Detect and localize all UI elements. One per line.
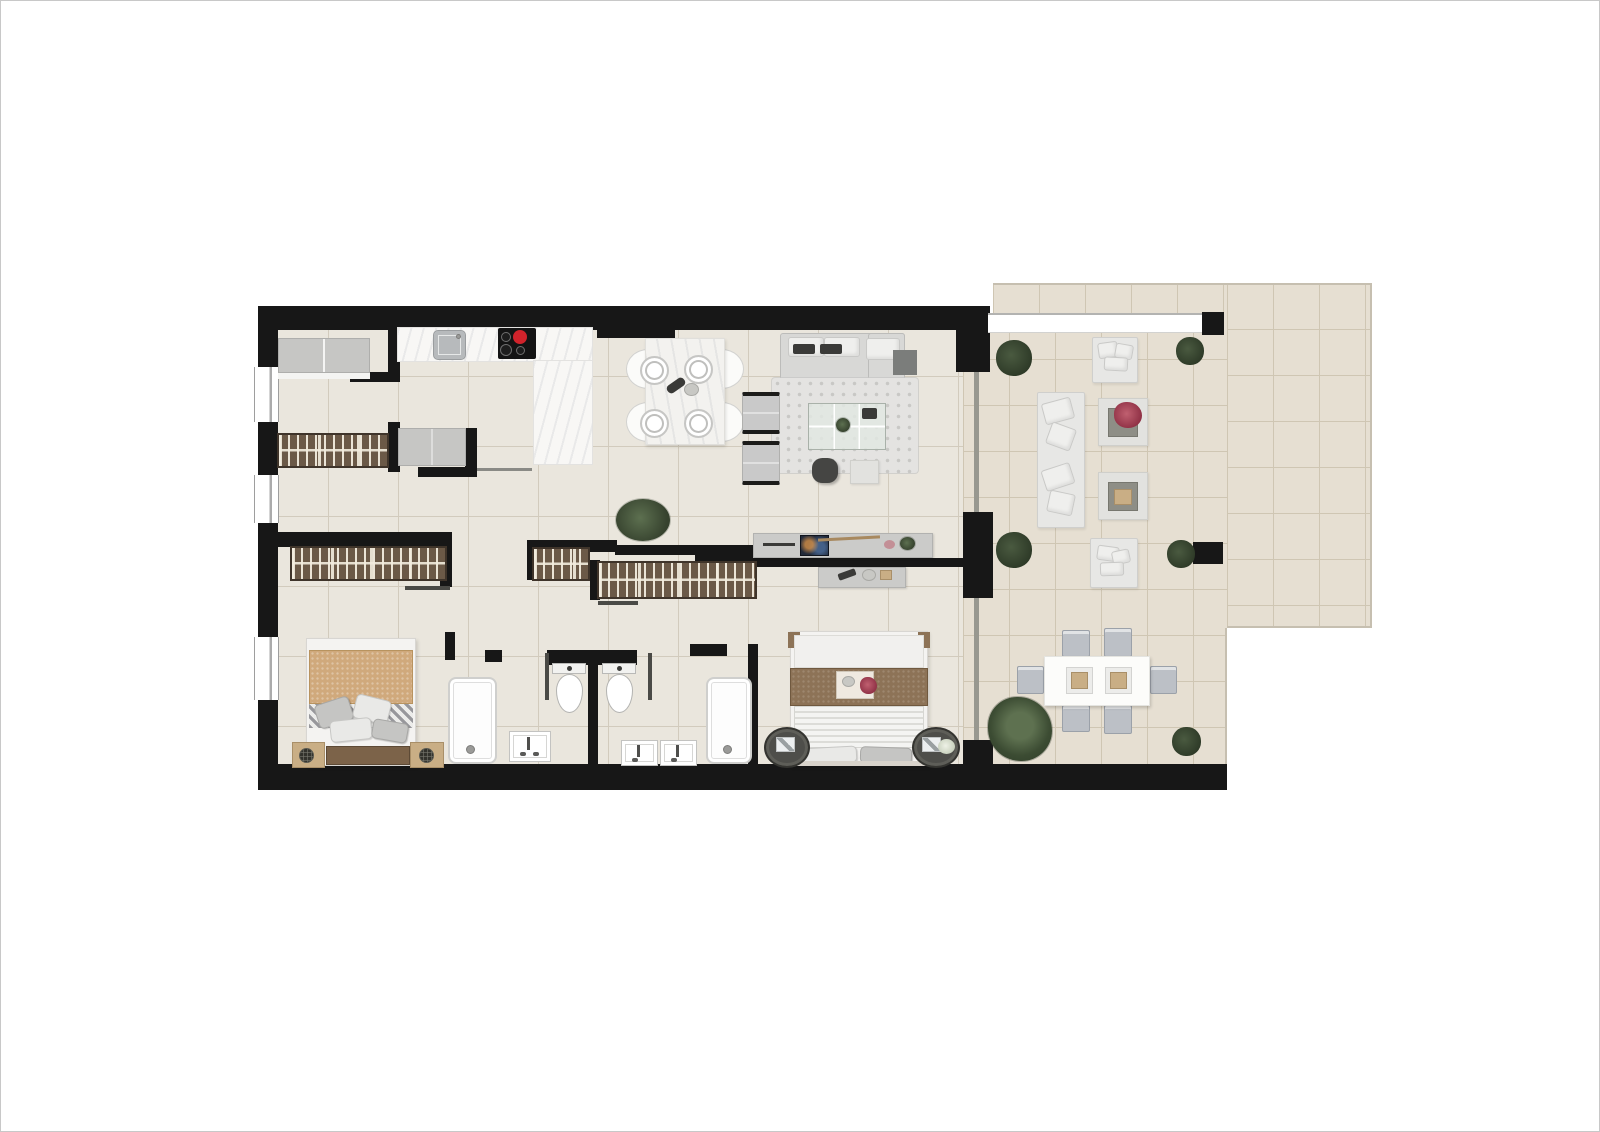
terrace-edge-main-right	[1225, 628, 1227, 768]
terrace-chair-top-2	[1104, 628, 1132, 657]
coffee-table-decor	[862, 408, 877, 419]
side-table-small	[850, 460, 879, 484]
coffee-table-plant	[836, 418, 850, 432]
dresser-item-2	[862, 569, 876, 581]
hall-threshold-line	[477, 468, 532, 471]
glass-door-master	[974, 598, 979, 740]
wall-tv	[748, 558, 963, 567]
terrace-lounge-top-cushion-3	[1104, 356, 1129, 371]
faucet-1-handle-left	[520, 752, 526, 756]
entry-cabinet	[278, 338, 370, 373]
pouf	[812, 458, 838, 483]
pillar-terrace-midright	[1193, 542, 1223, 564]
cooktop-burner-2	[500, 344, 512, 356]
sofa-side-table	[893, 350, 917, 375]
bed2-duvet-striped	[794, 706, 924, 748]
wall-bath1-north	[485, 650, 502, 662]
terrace-chair-top-1	[1062, 630, 1090, 657]
wall-right-top	[956, 306, 990, 372]
terrace-edge-right	[1370, 283, 1372, 628]
bush-1	[996, 340, 1032, 376]
pillar-terrace-topright	[1202, 312, 1224, 335]
terrace-chair-bottom-2	[1104, 705, 1132, 734]
terrace-railing	[988, 313, 1202, 333]
bed2-duvet-top	[794, 635, 924, 668]
wall-bottom	[258, 764, 1227, 790]
terrace-side-table-2-tray	[1114, 489, 1132, 505]
terrace-lounge-bottom-cushion-3	[1100, 562, 1124, 577]
faucet-2b	[676, 745, 679, 757]
faucet-1	[527, 737, 530, 750]
wardrobe-hall	[532, 547, 590, 581]
bed2-tray-decor	[842, 676, 855, 687]
toilet-2-button	[617, 666, 622, 671]
dining-plate-1	[640, 356, 669, 385]
door-bathroom2	[648, 653, 652, 700]
dresser-item-3	[880, 570, 892, 580]
glass-door-living	[974, 372, 979, 512]
wall-top-entry-column	[597, 306, 675, 338]
window-corridor	[254, 475, 279, 523]
faucet-2b-handle	[671, 758, 677, 762]
door-bedroom1	[405, 586, 450, 590]
dining-centerpiece	[684, 383, 699, 396]
kitchen-counter	[397, 327, 593, 362]
console-handle	[763, 543, 795, 546]
shower-1-drain	[466, 745, 475, 754]
floor-terrace-extension	[1227, 283, 1372, 628]
door-master	[598, 601, 638, 605]
door-bathroom1	[545, 653, 549, 700]
flowers-master	[938, 739, 955, 754]
console-flowers	[884, 540, 895, 549]
faucet-1-handle-right	[533, 752, 539, 756]
kitchen-island	[533, 360, 593, 465]
terrace-napkin-1-center	[1071, 672, 1088, 689]
wardrobe-bedroom1	[290, 546, 447, 581]
pillar-terrace-bottom	[975, 740, 993, 766]
toilet-1-button	[567, 666, 572, 671]
terrace-chair-right	[1150, 666, 1177, 694]
terrace-dining-table	[1044, 656, 1150, 706]
terrace-edge-extension-bottom	[1227, 626, 1372, 628]
wall-bath1-stub	[445, 632, 455, 660]
window-entry	[254, 367, 279, 422]
wall-hall-north-b	[615, 545, 695, 555]
armchair-2	[742, 441, 780, 485]
wall-utility-bottom	[418, 467, 477, 477]
armchair-1	[742, 392, 780, 434]
faucet-2a	[637, 745, 640, 757]
bush-5	[1172, 727, 1201, 756]
entry-cabinet-sill	[278, 373, 370, 379]
terrace-chair-left	[1017, 666, 1044, 694]
dining-plate-4	[684, 409, 713, 438]
bed2-headboard	[790, 761, 928, 766]
dining-plate-2	[684, 355, 713, 384]
wall-bath2-north	[690, 644, 727, 656]
bed2-flowers	[860, 677, 877, 694]
speaker-bed1-left	[299, 748, 314, 763]
kitchen-faucet	[456, 334, 461, 339]
plant-corridor	[616, 499, 670, 541]
shower-2-drain	[723, 745, 732, 754]
terrace-napkin-2-center	[1110, 672, 1127, 689]
console-plant	[900, 537, 915, 550]
utility-bench	[398, 428, 466, 466]
faucet-2a-handle	[632, 758, 638, 762]
bush-3	[996, 532, 1032, 568]
cooktop-burner-1	[501, 332, 511, 342]
bed1-footboard	[326, 746, 410, 765]
terrace-chair-bottom-1	[1062, 705, 1090, 732]
window-bedroom1	[254, 637, 279, 700]
floor-plan-page	[0, 0, 1600, 1132]
wall-bedroom1-north	[278, 532, 452, 547]
dining-plate-3	[640, 409, 669, 438]
kitchen-sink	[433, 330, 466, 360]
wall-right-mid	[963, 512, 993, 598]
lamp-master-left	[776, 737, 795, 752]
speaker-bed1-right	[419, 748, 434, 763]
palm-plant	[988, 697, 1052, 761]
cooktop-burner-3	[516, 346, 525, 355]
sofa-tray-2	[820, 344, 842, 354]
terrace-plant-red	[1114, 402, 1142, 428]
wardrobe-master	[597, 561, 757, 599]
bush-2	[1176, 337, 1204, 365]
sofa-tray-1	[793, 344, 815, 354]
sink-1	[509, 731, 551, 762]
wardrobe-entry	[277, 433, 389, 468]
cooktop-burner-red	[513, 330, 527, 344]
bush-4	[1167, 540, 1195, 568]
bed1-pillow-3	[329, 717, 373, 743]
terrace-edge-top	[993, 283, 1372, 285]
wall-bath-divider	[588, 650, 598, 784]
